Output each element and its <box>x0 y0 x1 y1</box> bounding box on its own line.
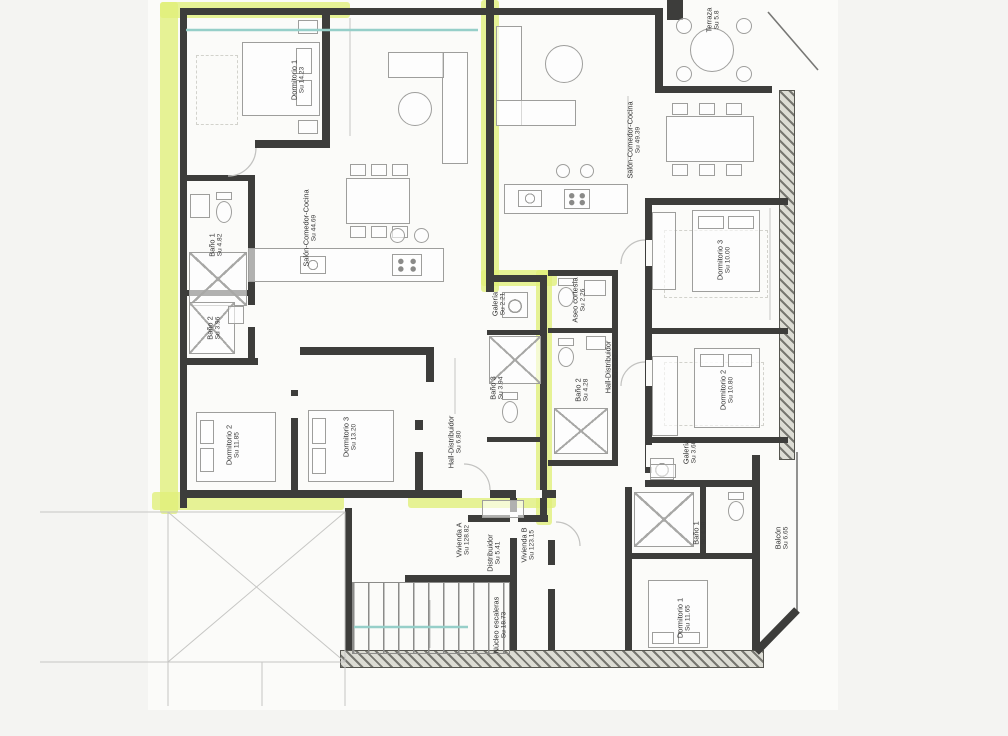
toilet <box>216 201 232 223</box>
stairs <box>352 582 510 654</box>
wall <box>180 8 187 508</box>
wall <box>548 270 618 276</box>
room-name: Salón-Comedor-Cocina <box>625 101 634 178</box>
rug <box>196 55 238 125</box>
toilet <box>558 347 574 367</box>
room-label-hall-b: Hall-Distribuidor Su 11.32 <box>603 341 620 394</box>
chair <box>371 164 387 176</box>
pillow <box>728 216 754 229</box>
room-name: Baño 3 <box>488 376 497 399</box>
room-name: Dormitorio 2 <box>718 370 727 410</box>
toilet <box>728 501 744 521</box>
unit-label-vivienda-a: Vivienda A Su 128.82 <box>454 523 471 558</box>
room-label-dormitorio-1-a: Dormitorio 1 Su 14.23 <box>289 60 306 100</box>
room-area: Su 2.21 <box>500 293 508 316</box>
room-name: Dormitorio 1 <box>675 598 684 638</box>
room-area: Su 3.60 <box>691 441 699 464</box>
room-name: Hall-Distribuidor <box>603 341 612 394</box>
chair <box>371 226 387 238</box>
room-name: Baño 1 <box>207 233 216 256</box>
room-area: Su 14.23 <box>299 67 307 93</box>
bathtub <box>634 492 694 547</box>
room-label-bano-2-a: Baño 2 Su 3.96 <box>205 316 222 339</box>
shower <box>554 408 608 454</box>
sofa <box>388 52 444 78</box>
wall <box>540 275 547 522</box>
room-name: Dormitorio 3 <box>341 417 350 457</box>
dining-table <box>666 116 754 162</box>
room-label-dormitorio-2-b: Dormitorio 2 Su 10.80 <box>718 370 735 410</box>
wall <box>183 358 258 365</box>
room-name: Núcleo escaleras <box>491 597 500 654</box>
wardrobe <box>652 356 678 436</box>
wall <box>487 275 547 282</box>
stove <box>564 189 590 209</box>
pillow <box>200 448 214 472</box>
washbasin <box>228 306 244 324</box>
toilet-tank <box>558 338 574 346</box>
chair <box>699 164 715 176</box>
wall <box>322 8 330 148</box>
chair <box>699 103 715 115</box>
room-label-dormitorio-3-b: Dormitorio 3 Su 10.00 <box>715 240 732 280</box>
wall <box>405 575 510 582</box>
stool <box>556 164 570 178</box>
shower <box>189 252 247 306</box>
nightstand <box>298 20 318 34</box>
stove <box>392 254 422 276</box>
wall <box>655 8 663 93</box>
room-area: Su 13.20 <box>351 424 359 450</box>
room-label-distribuidor: Distribuidor Su 5.41 <box>485 534 502 571</box>
pillow <box>312 448 326 474</box>
room-area: Su 11.32 <box>613 354 621 380</box>
pillow <box>698 216 724 229</box>
kitchen-sink <box>518 190 542 207</box>
wall <box>667 0 683 20</box>
wall <box>652 328 788 334</box>
room-area: Su 3.94 <box>498 377 506 400</box>
wall <box>494 8 659 15</box>
room-label-bano-1-a: Baño 1 Su 4.82 <box>207 233 224 256</box>
wall <box>180 490 430 498</box>
wall <box>652 437 788 443</box>
room-area: Su 3.96 <box>215 317 223 340</box>
room-name: Baño 2 <box>573 378 582 401</box>
room-area: Su 4.38 <box>701 522 709 545</box>
wall <box>183 175 251 181</box>
pillow <box>700 354 724 367</box>
pillow <box>312 418 326 444</box>
wall <box>487 437 540 442</box>
room-label-dormitorio-2-a: Dormitorio 2 Su 11.85 <box>224 425 241 465</box>
room-label-salon-b: Salón-Comedor-Cocina Su 49.39 <box>625 101 642 178</box>
stool <box>414 228 429 243</box>
washbasin <box>650 464 676 478</box>
unit-name: Vivienda A <box>454 523 463 558</box>
chair <box>392 164 408 176</box>
room-name: Dormitorio 1 <box>289 60 298 100</box>
terrace-table <box>690 28 734 72</box>
toilet <box>502 401 518 423</box>
unit-area: Su 123.15 <box>529 530 537 560</box>
room-area: Su 6.80 <box>456 431 464 454</box>
door-opening <box>516 490 542 498</box>
toilet-tank <box>216 192 232 200</box>
room-name: Aseo cortesía <box>570 277 579 322</box>
chair <box>726 103 742 115</box>
wall-exterior <box>779 90 795 460</box>
wall <box>548 540 555 652</box>
highlight-band <box>160 2 178 514</box>
room-label-nucleo-escaleras: Núcleo escaleras Su 18.73 <box>491 597 508 654</box>
room-label-hall-a: Hall-Distribuidor Su 6.80 <box>446 416 463 469</box>
chair <box>736 66 752 82</box>
wall <box>548 328 612 333</box>
wall <box>660 86 772 93</box>
wall <box>300 347 432 355</box>
chair <box>672 103 688 115</box>
room-label-terraza-b: Terraza Su 5.8 <box>704 8 721 33</box>
room-name: Terraza <box>704 8 713 33</box>
pillow <box>652 632 674 644</box>
nightstand <box>298 120 318 134</box>
room-label-bano-3-a: Baño 3 Su 3.94 <box>488 376 505 399</box>
wall <box>345 508 352 665</box>
cupboard <box>482 500 524 518</box>
door-opening <box>548 565 556 589</box>
room-label-dormitorio-1-b: Dormitorio 1 Su 11.65 <box>675 598 692 638</box>
room-area: Su 10.80 <box>728 377 736 403</box>
room-name: Balcón <box>773 527 782 550</box>
wall <box>628 553 755 559</box>
door-opening <box>291 396 298 418</box>
chair <box>676 66 692 82</box>
room-area: Su 49.39 <box>635 127 643 153</box>
dining-table <box>346 178 410 224</box>
toilet-tank <box>728 492 744 500</box>
room-label-galeria-b: Galería Su 3.60 <box>681 440 698 464</box>
sofa <box>442 52 468 164</box>
room-label-salon-a: Salón-Comedor-Cocina Su 44.69 <box>301 189 318 266</box>
pillow <box>728 354 752 367</box>
door-opening <box>248 305 256 327</box>
unit-area: Su 128.82 <box>464 525 472 555</box>
room-area: Su 11.65 <box>685 605 693 631</box>
wall <box>487 330 540 335</box>
sofa <box>496 100 576 126</box>
wall <box>548 460 616 466</box>
room-area: Su 2.26 <box>580 289 588 312</box>
coffee-table <box>545 45 583 83</box>
room-label-aseo-b: Aseo cortesía Su 2.26 <box>570 277 587 322</box>
room-area: Su 5.8 <box>714 10 722 29</box>
chair <box>676 18 692 34</box>
room-name: Dormitorio 2 <box>224 425 233 465</box>
wall <box>645 198 788 205</box>
wall <box>255 140 330 148</box>
room-name: Dormitorio 3 <box>715 240 724 280</box>
room-label-galeria-a: Galería Su 2.21 <box>490 292 507 316</box>
room-name: Distribuidor <box>485 534 494 571</box>
room-name: Galería <box>681 440 690 464</box>
room-label-balcon-b: Balcón Su 6.65 <box>773 527 790 550</box>
washbasin <box>190 194 210 218</box>
room-area: Su 5.41 <box>495 542 503 565</box>
coffee-table <box>398 92 432 126</box>
chair <box>736 18 752 34</box>
room-name: Baño 1 <box>691 521 700 544</box>
unit-name: Vivienda B <box>519 527 528 562</box>
room-label-bano-2-b: Baño 2 Su 4.28 <box>573 378 590 401</box>
door-opening <box>415 430 423 452</box>
room-area: Su 44.69 <box>311 215 319 241</box>
room-area: Su 10.00 <box>725 247 733 273</box>
chair <box>726 164 742 176</box>
room-name: Salón-Comedor-Cocina <box>301 189 310 266</box>
wall-party <box>486 0 494 292</box>
unit-label-vivienda-b: Vivienda B Su 123.15 <box>519 527 536 562</box>
door-opening <box>462 490 490 498</box>
room-label-dormitorio-3-a: Dormitorio 3 Su 13.20 <box>341 417 358 457</box>
pillow <box>200 420 214 444</box>
room-label-bano-1-b: Baño 1 Su 4.38 <box>691 521 708 544</box>
chair <box>350 164 366 176</box>
room-name: Hall-Distribuidor <box>446 416 455 469</box>
room-area: Su 6.65 <box>783 527 791 550</box>
stool <box>580 164 594 178</box>
wall <box>625 487 632 653</box>
chair <box>672 164 688 176</box>
room-area: Su 11.85 <box>234 432 242 458</box>
wall <box>426 347 434 382</box>
stool <box>390 228 405 243</box>
floor-plan: Dormitorio 1 Su 14.23 Baño 1 Su 4.82 Bañ… <box>0 0 1008 736</box>
room-area: Su 4.28 <box>583 379 591 402</box>
room-name: Baño 2 <box>205 316 214 339</box>
room-name: Galería <box>490 292 499 316</box>
chair <box>350 226 366 238</box>
wardrobe <box>652 212 676 290</box>
room-area: Su 4.82 <box>217 234 225 257</box>
room-area: Su 18.73 <box>501 612 509 638</box>
wall <box>180 8 490 15</box>
wall <box>645 480 757 487</box>
